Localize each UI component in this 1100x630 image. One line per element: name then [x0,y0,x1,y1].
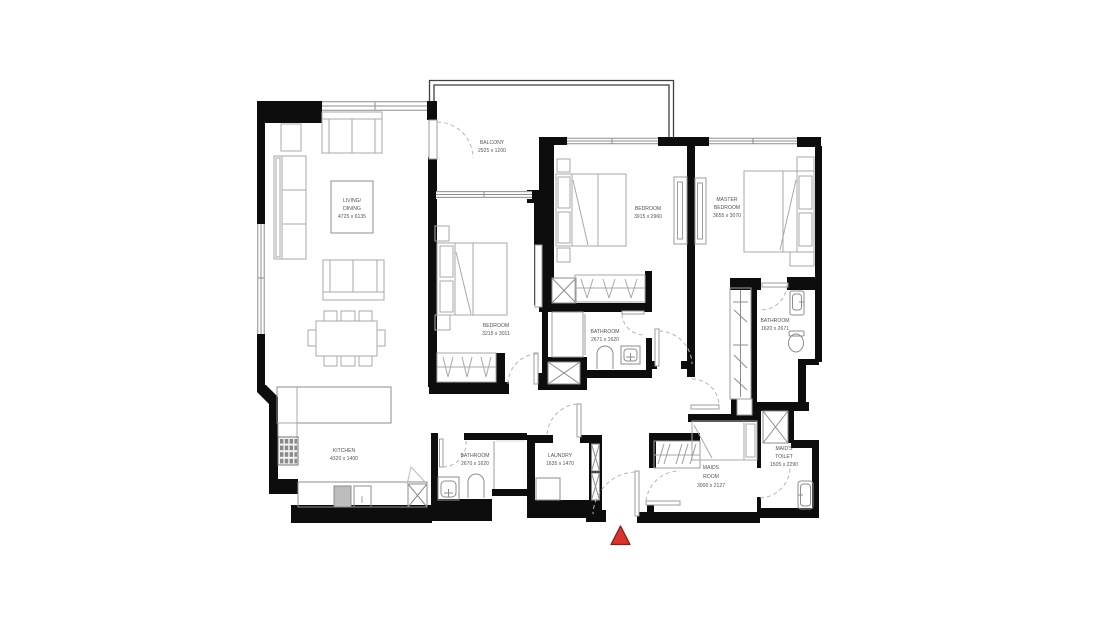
svg-text:3000 x 2127: 3000 x 2127 [697,483,725,489]
svg-text:LIVING/: LIVING/ [343,198,362,204]
svg-text:2670 x 1620: 2670 x 1620 [461,461,489,467]
svg-text:MASTER: MASTER [716,197,738,203]
svg-text:MAID'S: MAID'S [775,446,793,452]
svg-text:DINING: DINING [343,206,361,212]
svg-text:MAIDS: MAIDS [703,465,720,471]
svg-text:BATHROOM: BATHROOM [590,329,619,335]
svg-text:3915 x 2960: 3915 x 2960 [634,214,662,220]
svg-text:3215 x 3011: 3215 x 3011 [482,331,510,337]
svg-text:BEDROOM: BEDROOM [635,206,661,212]
svg-text:1505 x 2290: 1505 x 2290 [770,462,798,468]
svg-text:1635 x 1470: 1635 x 1470 [546,461,574,467]
svg-text:ROOM: ROOM [703,474,719,480]
svg-text:4725 x 6135: 4725 x 6135 [338,214,366,220]
svg-text:3655 x 3070: 3655 x 3070 [713,213,741,219]
svg-text:BATHROOM: BATHROOM [760,318,789,324]
svg-text:1620 x 2671: 1620 x 2671 [761,326,789,332]
svg-text:2671 x 1620: 2671 x 1620 [591,337,619,343]
svg-text:BEDROOM: BEDROOM [483,323,509,329]
svg-text:BATHROOM: BATHROOM [460,453,489,459]
svg-text:KITCHEN: KITCHEN [333,448,356,454]
svg-text:BEDROOM: BEDROOM [714,205,740,211]
svg-text:LAUNDRY: LAUNDRY [548,453,573,459]
svg-text:4320 x 1400: 4320 x 1400 [330,456,358,462]
svg-text:2925 x 1200: 2925 x 1200 [478,148,506,154]
svg-text:TOILET: TOILET [775,454,793,460]
svg-text:BALCONY: BALCONY [480,140,505,146]
